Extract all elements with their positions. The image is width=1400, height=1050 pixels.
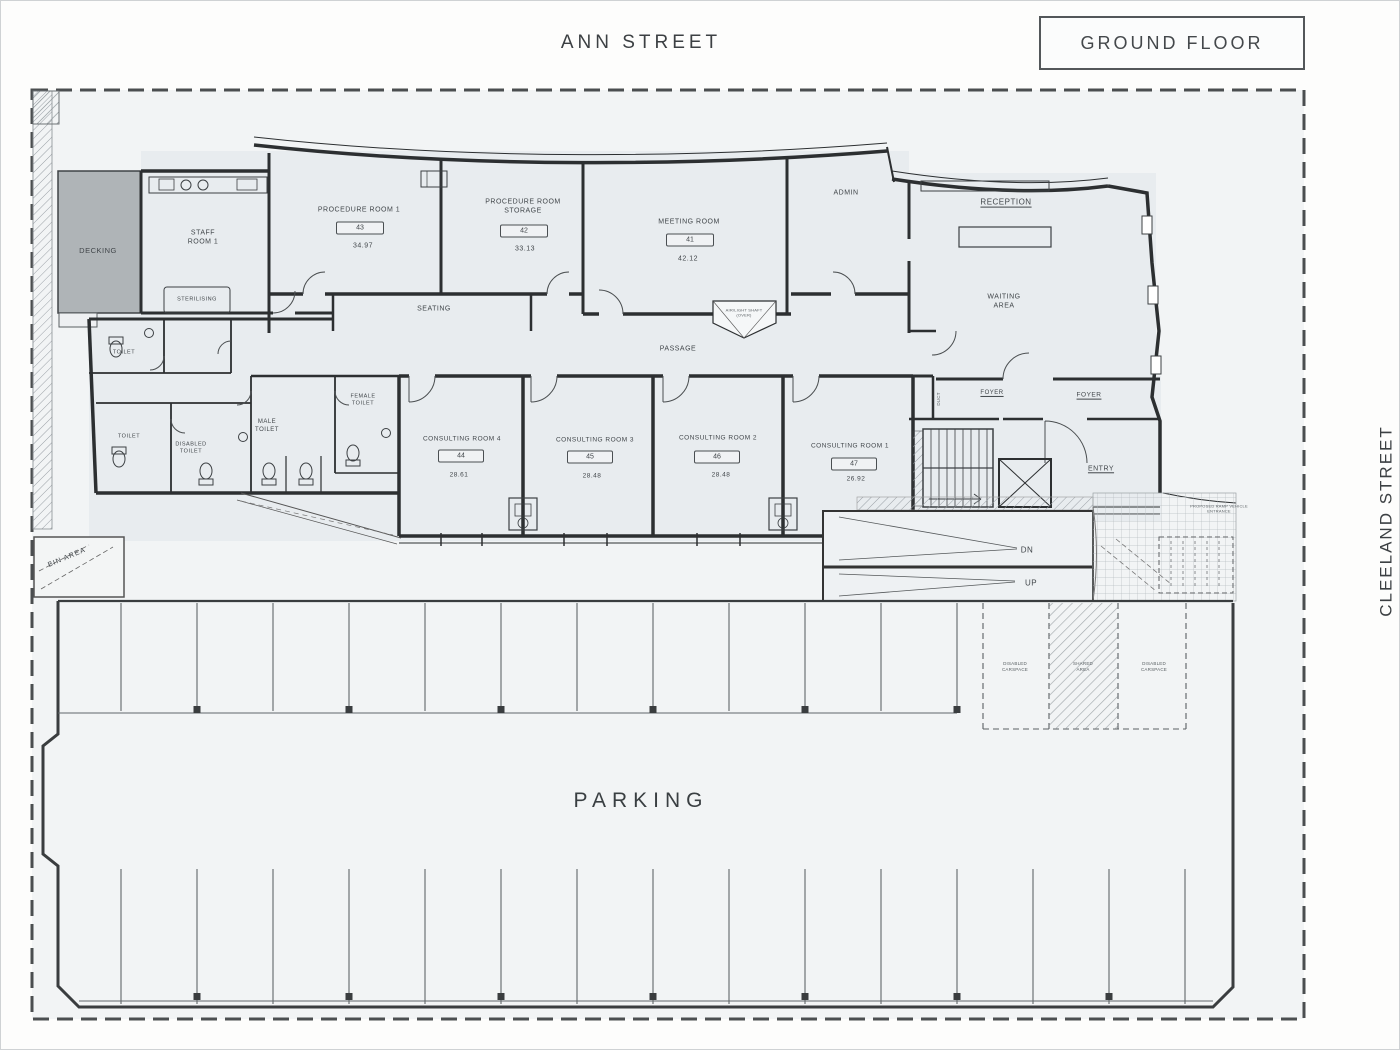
room-number-consulting-room-1: 47 bbox=[831, 458, 877, 471]
room-label-admin: ADMIN bbox=[833, 188, 858, 197]
room-label-reception: RECEPTION bbox=[980, 198, 1031, 209]
room-label-decking: DECKING bbox=[79, 246, 117, 256]
building-floor-fill bbox=[58, 151, 1161, 541]
decking-area bbox=[58, 171, 141, 313]
label-disabled-carspace-left: DISABLED CARSPACE bbox=[995, 661, 1035, 673]
label-duct: DUCT bbox=[936, 392, 942, 405]
label-foyer-right: FOYER bbox=[1077, 392, 1102, 401]
room-number-consulting-room-3: 45 bbox=[567, 451, 613, 464]
room-label-procedure-room-storage: PROCEDURE ROOM STORAGE bbox=[479, 198, 567, 217]
label-seating: SEATING bbox=[417, 304, 451, 313]
floorplan-linework bbox=[1, 1, 1400, 1050]
room-area-meeting-room: 42.12 bbox=[678, 254, 698, 263]
label-ramp-dn: DN bbox=[1021, 546, 1034, 557]
room-area-consulting-room-4: 28.61 bbox=[450, 472, 469, 481]
label-foyer-left: FOYER bbox=[980, 389, 1003, 397]
street-label-ann: ANN STREET bbox=[561, 30, 721, 56]
room-number-procedure-room-storage: 42 bbox=[500, 225, 548, 238]
room-label-staff-room: STAFF ROOM 1 bbox=[183, 229, 223, 248]
label-parking: PARKING bbox=[574, 787, 709, 815]
room-area-consulting-room-1: 26.92 bbox=[847, 476, 866, 485]
room-area-procedure-room-storage: 33.13 bbox=[515, 244, 535, 253]
label-disabled-toilet: DISABLED TOILET bbox=[170, 442, 212, 457]
room-area-consulting-room-2: 28.48 bbox=[712, 472, 731, 481]
room-area-procedure-room-1: 34.97 bbox=[353, 241, 373, 250]
label-ramp-up: UP bbox=[1025, 579, 1037, 590]
label-toilet-lower: TOILET bbox=[118, 433, 140, 440]
label-shared-area: SHARED AREA bbox=[1066, 661, 1100, 673]
room-number-consulting-room-2: 46 bbox=[694, 451, 740, 464]
label-passage: PASSAGE bbox=[660, 344, 696, 353]
room-label-consulting-room-1: CONSULTING ROOM 1 bbox=[811, 443, 889, 452]
room-number-meeting-room: 41 bbox=[666, 234, 714, 247]
label-toilet-upper: TOILET bbox=[113, 349, 135, 356]
room-label-consulting-room-3: CONSULTING ROOM 3 bbox=[556, 437, 634, 446]
room-label-waiting-area: WAITING AREA bbox=[978, 293, 1030, 312]
label-male-toilet: MALE TOILET bbox=[251, 418, 283, 434]
room-number-procedure-room-1: 43 bbox=[336, 222, 384, 235]
room-label-consulting-room-2: CONSULTING ROOM 2 bbox=[679, 435, 757, 444]
label-air-light-shaft: AIR/LIGHT SHAFT (OVER) bbox=[720, 308, 768, 319]
label-entry: ENTRY bbox=[1088, 464, 1114, 473]
floor-title-badge: GROUND FLOOR bbox=[1039, 16, 1305, 70]
floor-title: GROUND FLOOR bbox=[1080, 33, 1263, 54]
room-label-meeting-room: MEETING ROOM bbox=[658, 217, 720, 226]
label-female-toilet: FEMALE TOILET bbox=[344, 394, 382, 409]
floor-plan-sheet: ANN STREET GROUND FLOOR CLEELAND STREET … bbox=[0, 0, 1400, 1050]
room-number-consulting-room-4: 44 bbox=[438, 450, 484, 463]
room-label-sterilising: STERILISING bbox=[177, 296, 217, 303]
carpark-ramp bbox=[823, 497, 1093, 601]
label-disabled-carspace-right: DISABLED CARSPACE bbox=[1134, 661, 1174, 673]
room-area-consulting-room-3: 28.48 bbox=[583, 473, 602, 482]
room-label-procedure-room-1: PROCEDURE ROOM 1 bbox=[318, 205, 400, 214]
label-ramp-note: PROPOSED RAMP VEHICLE ENTRANCE bbox=[1189, 504, 1249, 515]
street-label-cleeland: CLEELAND STREET bbox=[1376, 425, 1399, 617]
room-label-consulting-room-4: CONSULTING ROOM 4 bbox=[423, 436, 501, 445]
